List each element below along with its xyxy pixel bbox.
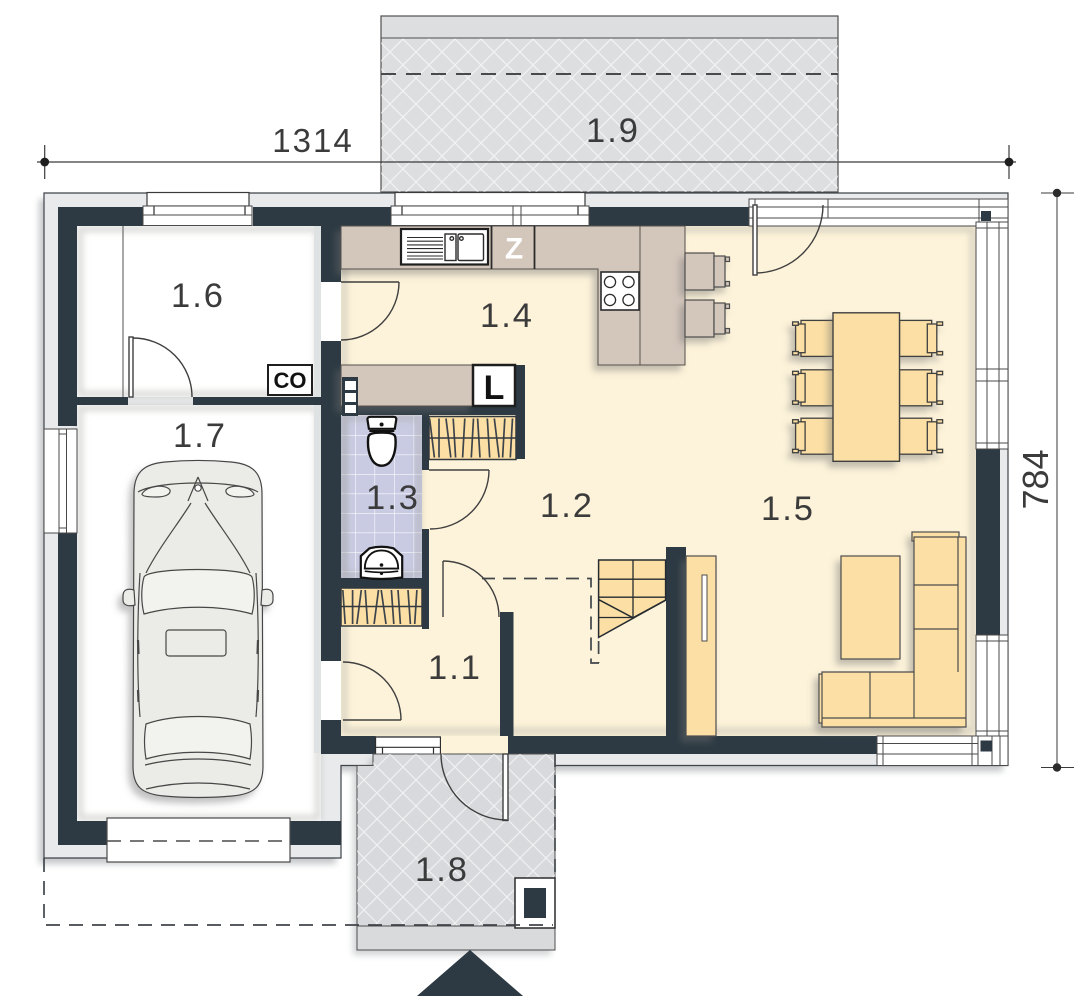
svg-text:784: 784 — [1015, 449, 1056, 509]
svg-text:1.3: 1.3 — [366, 479, 420, 517]
svg-text:Z: Z — [505, 233, 523, 266]
svg-text:1.7: 1.7 — [173, 417, 227, 455]
svg-text:1.1: 1.1 — [428, 649, 482, 687]
svg-text:1.9: 1.9 — [586, 112, 640, 150]
svg-text:1314: 1314 — [272, 122, 353, 159]
svg-text:L: L — [484, 369, 505, 407]
svg-text:1.4: 1.4 — [480, 297, 534, 335]
svg-text:1.2: 1.2 — [540, 487, 594, 525]
svg-text:CO: CO — [274, 368, 307, 393]
svg-text:1.5: 1.5 — [761, 490, 815, 528]
svg-text:1.8: 1.8 — [415, 851, 469, 889]
svg-text:1.6: 1.6 — [171, 277, 225, 315]
